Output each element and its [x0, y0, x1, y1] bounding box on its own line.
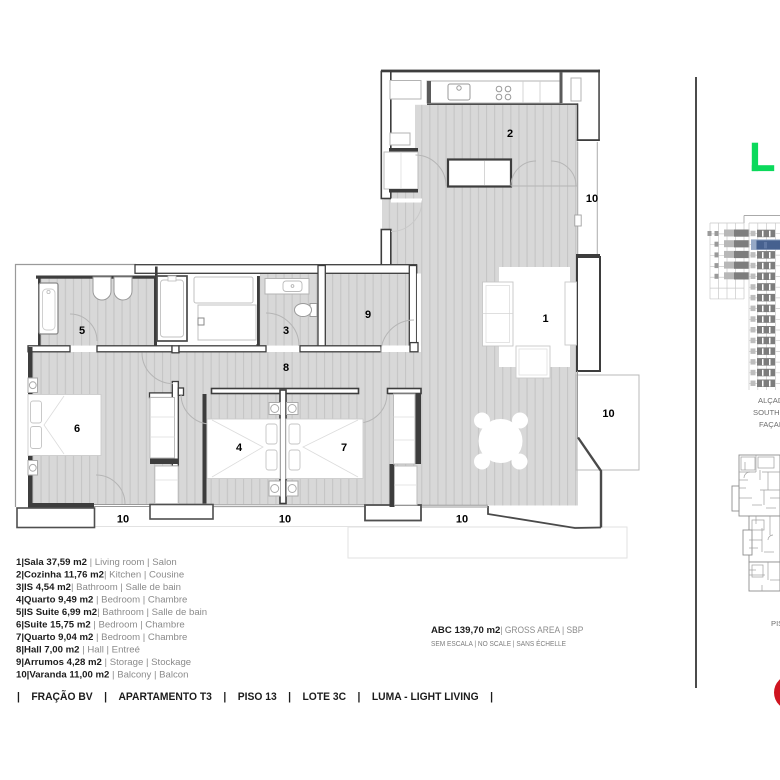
svg-text:4: 4 [236, 442, 243, 454]
svg-text:2: 2 [507, 128, 513, 140]
svg-text:SOUTH ELEVATION: SOUTH ELEVATION [753, 408, 780, 417]
svg-text:10: 10 [456, 514, 468, 526]
svg-text:10: 10 [117, 514, 129, 526]
svg-text:1|Sala 37,59 m2 | Living room: 1|Sala 37,59 m2 | Living room | Salon [16, 557, 177, 568]
svg-text:9|Arrumos 4,28 m2 | Storage |: 9|Arrumos 4,28 m2 | Storage | Stockage [16, 657, 191, 668]
svg-text:5: 5 [79, 325, 85, 337]
svg-text:8|Hall 7,00 m2 | Hall | Entreé: 8|Hall 7,00 m2 | Hall | Entreé [16, 645, 140, 656]
svg-text:ABC 139,70 m2| GROSS AREA | SB: ABC 139,70 m2| GROSS AREA | SBP [431, 625, 583, 636]
svg-text:ALÇADO SUL: ALÇADO SUL [758, 396, 780, 405]
svg-text:PISO 13: PISO 13 [771, 619, 780, 628]
svg-text:6: 6 [74, 423, 80, 435]
svg-text:7|Quarto 9,04 m2 | Bedroom | C: 7|Quarto 9,04 m2 | Bedroom | Chambre [16, 632, 187, 643]
svg-text:10: 10 [586, 193, 598, 205]
svg-text:9: 9 [365, 309, 371, 321]
svg-text:10: 10 [279, 514, 291, 526]
svg-text:3: 3 [283, 325, 289, 337]
svg-text:7: 7 [341, 442, 347, 454]
svg-text:8: 8 [283, 362, 289, 374]
svg-text:10: 10 [602, 408, 614, 420]
svg-text:10|Varanda 11,00 m2 | Balcony: 10|Varanda 11,00 m2 | Balcony | Balcon [16, 670, 188, 681]
svg-text:SEM ESCALA | NO SCALE | SANS É: SEM ESCALA | NO SCALE | SANS ÉCHELLE [431, 639, 566, 648]
svg-text:2|Cozinha 11,76 m2| Kitchen |: 2|Cozinha 11,76 m2| Kitchen | Cousine [16, 570, 184, 581]
svg-text:3|IS 4,54 m2| Bathroom | Salle: 3|IS 4,54 m2| Bathroom | Salle de bain [16, 582, 181, 593]
svg-text:| FRAÇÃO BV | APARTAM: | FRAÇÃO BV | APARTAMENTO T3 | PISO 13 |… [17, 690, 493, 703]
svg-text:6|Suite 15,75 m2 | Bedroom | C: 6|Suite 15,75 m2 | Bedroom | Chambre [16, 620, 185, 631]
svg-text:FAÇADE SUD: FAÇADE SUD [759, 420, 780, 429]
svg-text:1: 1 [542, 313, 548, 325]
svg-text:4|Quarto 9,49 m2 | Bedroom | C: 4|Quarto 9,49 m2 | Bedroom | Chambre [16, 595, 187, 606]
svg-text:5|IS Suite 6,99 m2| Bathroom |: 5|IS Suite 6,99 m2| Bathroom | Salle de … [16, 607, 207, 618]
